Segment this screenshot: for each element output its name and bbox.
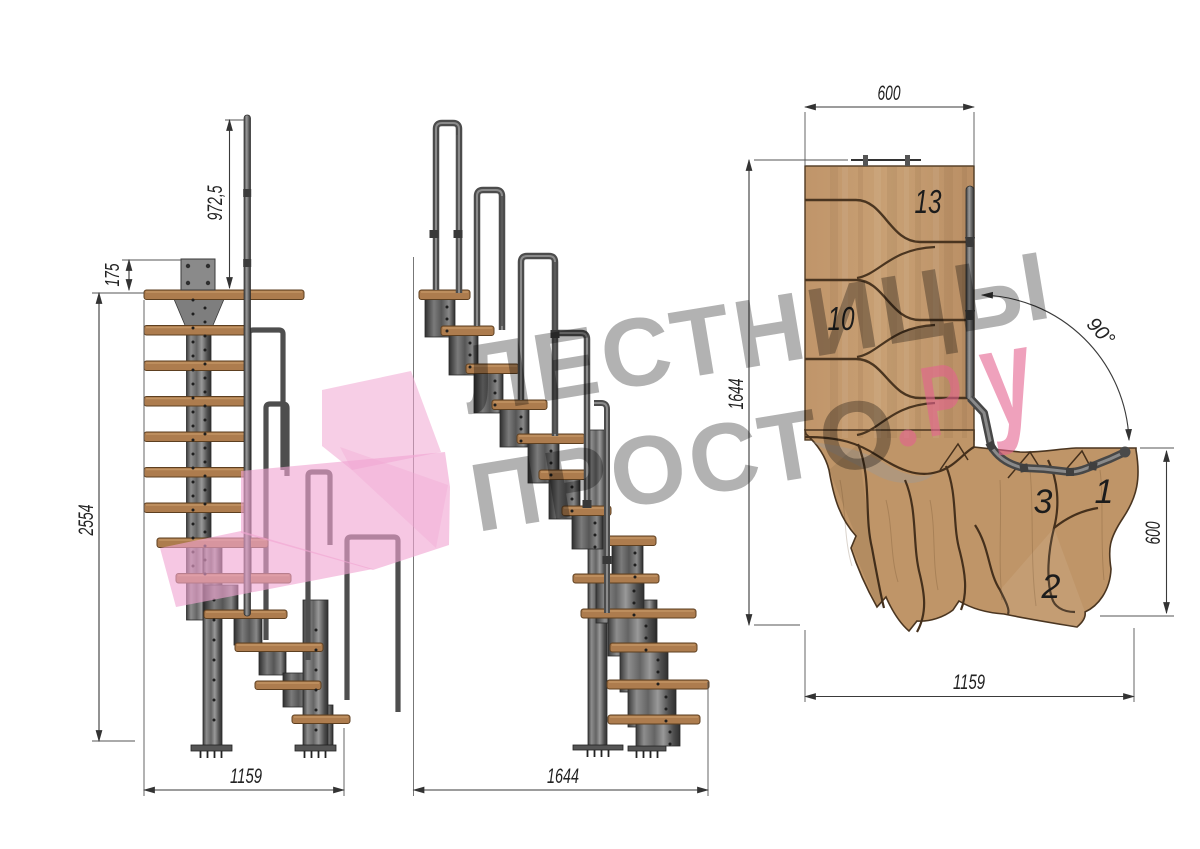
svg-text:600: 600 <box>878 82 901 105</box>
svg-text:600: 600 <box>1142 521 1165 544</box>
svg-text:13: 13 <box>915 183 942 220</box>
svg-text:1159: 1159 <box>230 765 262 788</box>
svg-text:3: 3 <box>1034 483 1053 521</box>
svg-text:2554: 2554 <box>75 505 98 537</box>
svg-text:972,5: 972,5 <box>204 185 227 220</box>
svg-text:1159: 1159 <box>953 671 985 694</box>
svg-text:2: 2 <box>1041 568 1061 606</box>
svg-text:1: 1 <box>1095 473 1114 511</box>
svg-text:175: 175 <box>102 263 124 287</box>
svg-text:1644: 1644 <box>547 765 579 788</box>
